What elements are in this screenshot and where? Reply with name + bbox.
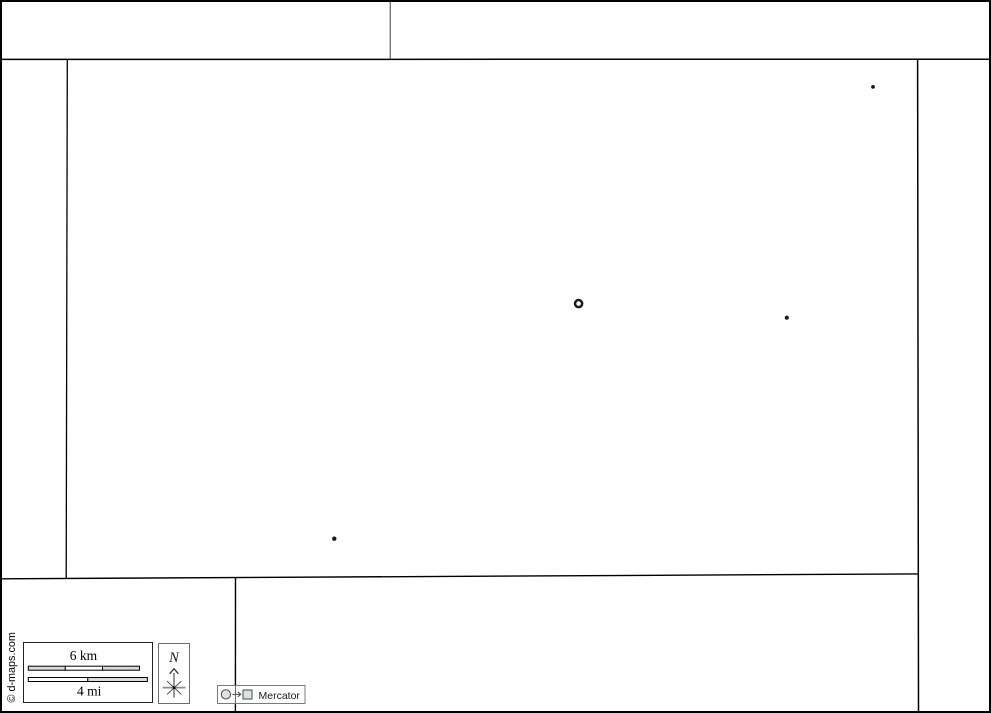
svg-text:4 mi: 4 mi: [77, 684, 102, 699]
svg-text:Mercator: Mercator: [259, 690, 301, 702]
svg-text:6 km: 6 km: [70, 648, 98, 663]
svg-text:N: N: [168, 650, 180, 666]
svg-text:© d-maps.com: © d-maps.com: [6, 632, 18, 702]
